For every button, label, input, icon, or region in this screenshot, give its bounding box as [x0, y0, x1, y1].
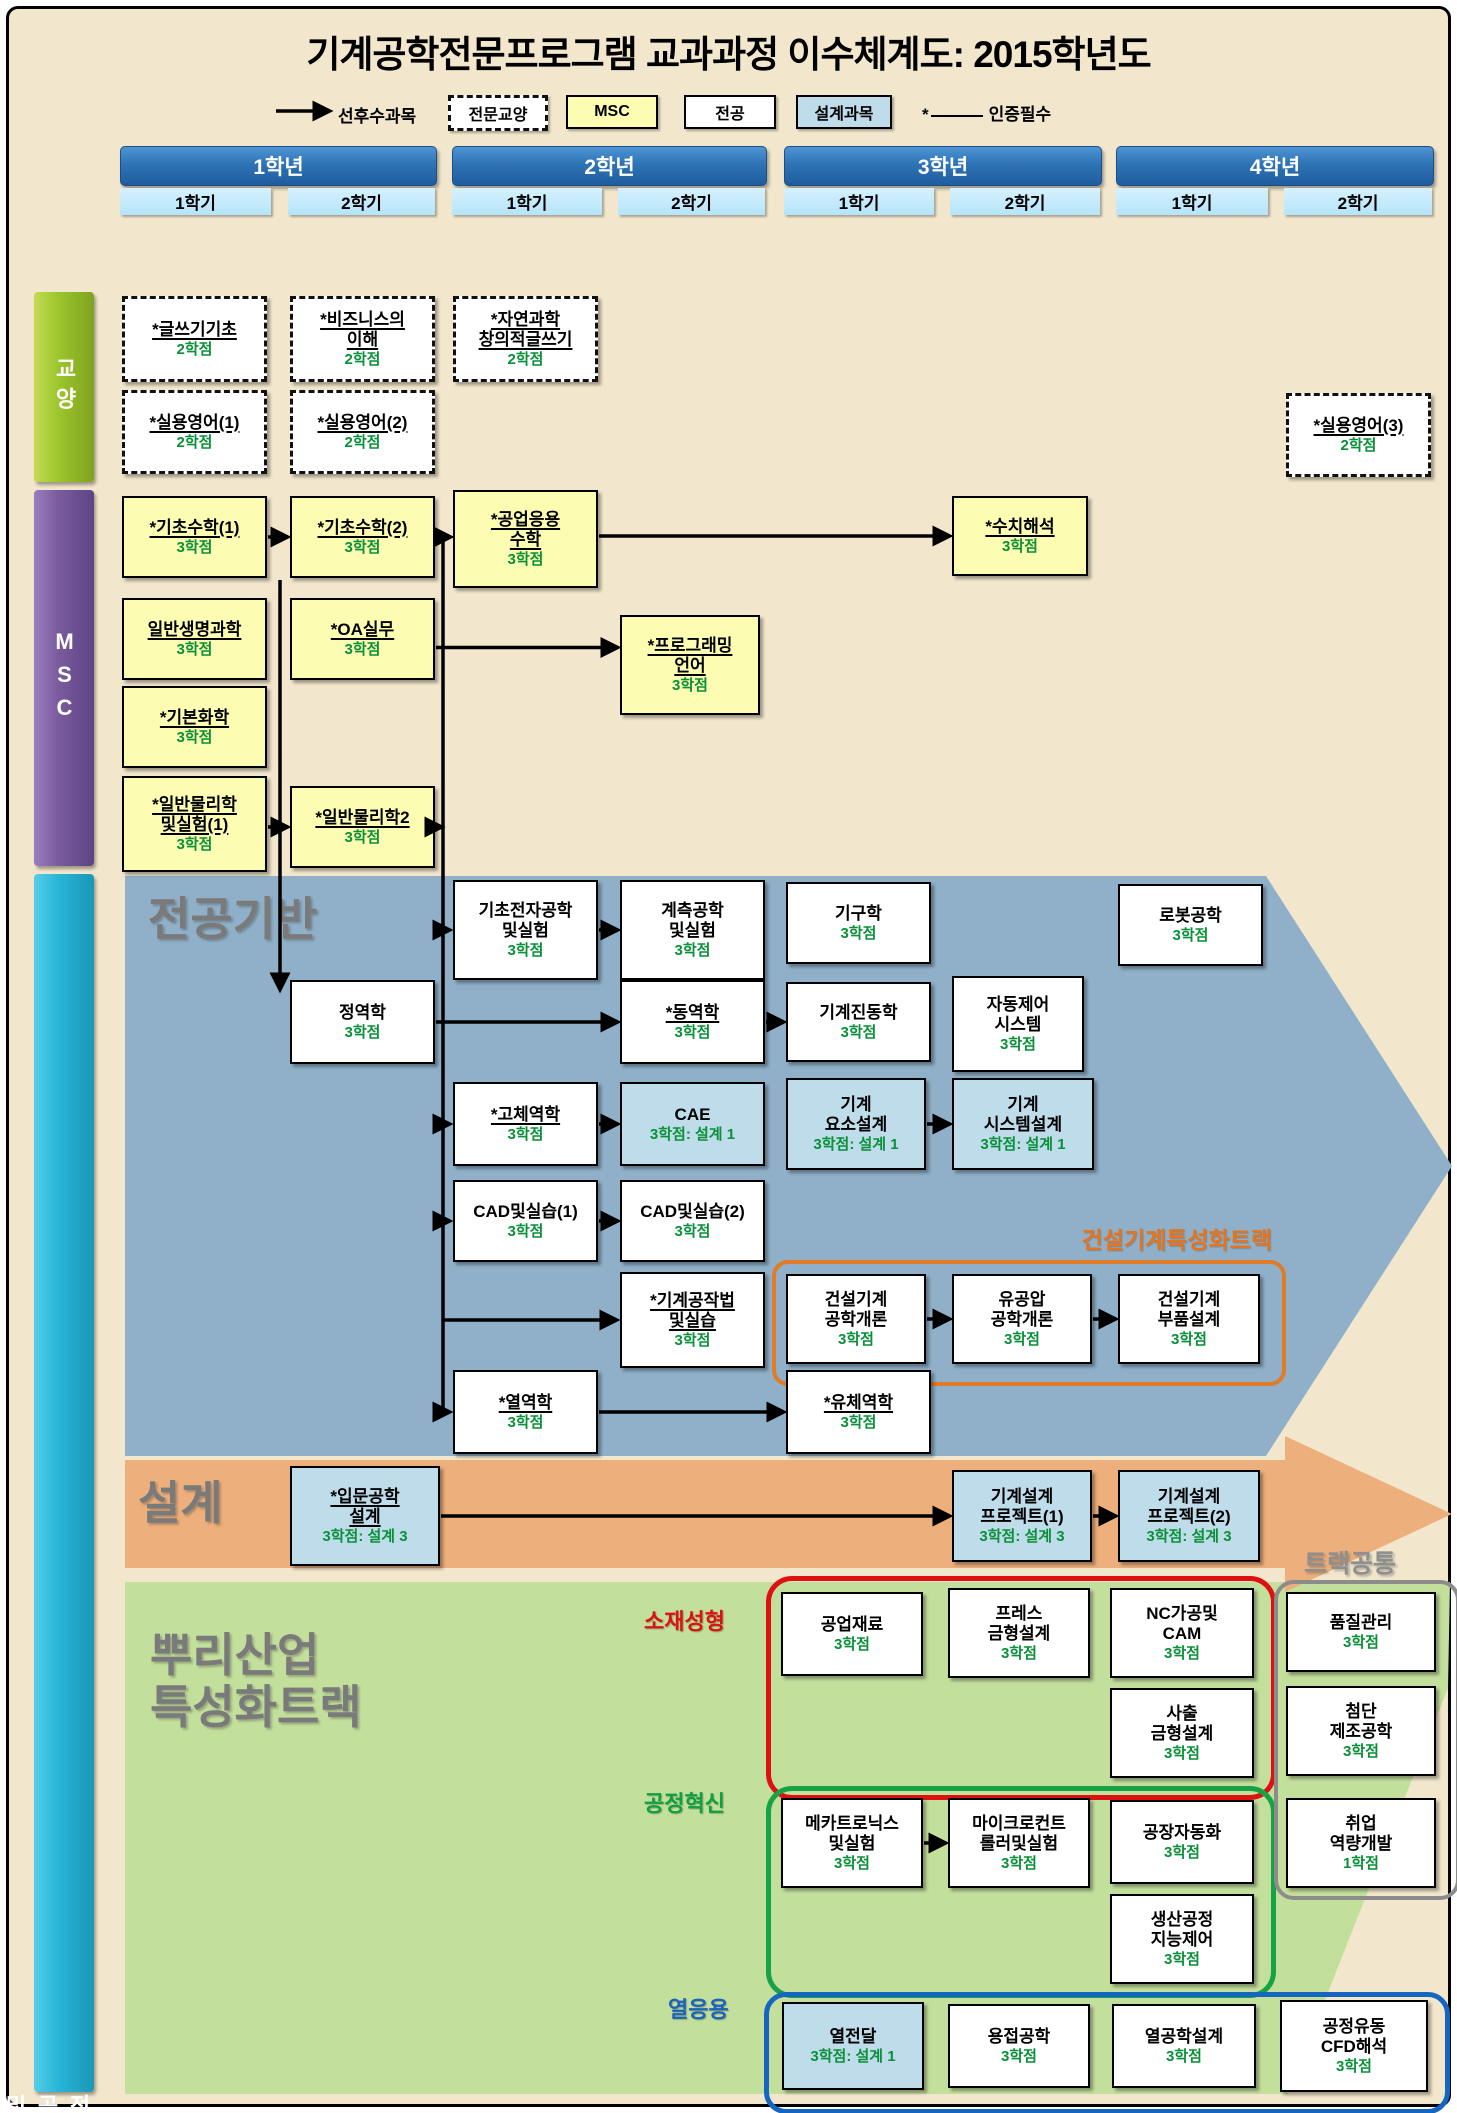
course-constparts: 건설기계부품설계3학점	[1118, 1274, 1260, 1364]
legend-general-education: 전문교양	[448, 95, 548, 131]
course-math1: *기초수학(1)3학점	[122, 496, 267, 578]
y3-sem2-header: 2학기	[950, 188, 1100, 215]
track-common-label: 트랙공통	[1304, 1550, 1396, 1578]
course-hydraulic: 유공압공학개론3학점	[952, 1274, 1092, 1364]
course-numanal: *수치해석3학점	[952, 496, 1088, 576]
star-symbol: *	[922, 105, 929, 124]
y4-sem1-header: 1학기	[1116, 188, 1268, 215]
course-cae: CAE3학점: 설계 1	[620, 1082, 765, 1166]
course-vibration: 기계진동학3학점	[786, 982, 931, 1062]
course-thermo: *열역학3학점	[453, 1370, 598, 1454]
major-base-label: 전공기반	[148, 894, 317, 946]
course-micro: 마이크로컨트롤러및실험3학점	[948, 1798, 1090, 1888]
course-injection: 사출금형설계3학점	[1110, 1688, 1254, 1778]
legend-design-course: 설계과목	[796, 95, 892, 129]
course-advmfg: 첨단제조공학3학점	[1286, 1686, 1436, 1776]
course-quality: 품질관리3학점	[1286, 1592, 1436, 1672]
course-prodproc: 생산공정지능제어3학점	[1110, 1894, 1254, 1984]
course-thermdesign: 열공학설계3학점	[1112, 2004, 1256, 2088]
design-band-label: 설계	[138, 1478, 223, 1530]
course-instr: 계측공학및실험3학점	[620, 880, 765, 980]
course-mecha: 메카트로닉스및실험3학점	[781, 1798, 923, 1888]
year-1-header: 1학년	[120, 146, 437, 186]
course-phys1: *일반물리학및실험(1)3학점	[122, 776, 267, 872]
course-phys2: *일반물리학23학점	[290, 786, 435, 868]
year-3-header: 3학년	[784, 146, 1102, 186]
y2-sem2-header: 2학기	[618, 188, 765, 215]
course-proj1: 기계설계프로젝트(1)3학점: 설계 3	[952, 1470, 1092, 1562]
course-proj2: 기계설계프로젝트(2)3학점: 설계 3	[1118, 1470, 1260, 1562]
y4-sem2-header: 2학기	[1284, 188, 1432, 215]
y3-sem1-header: 1학기	[784, 188, 934, 215]
course-eng1: *실용영어(1)2학점	[122, 390, 267, 474]
legend-major: 전공	[684, 95, 776, 129]
course-eng3: *실용영어(3)2학점	[1286, 393, 1431, 477]
course-chem: *기본화학3학점	[122, 686, 267, 768]
course-press: 프레스금형설계3학점	[948, 1588, 1090, 1678]
course-robot: 로봇공학3학점	[1118, 884, 1263, 966]
course-cfd: 공정유동CFD해석3학점	[1280, 2000, 1428, 2092]
course-introdesign: *입문공학설계3학점: 설계 3	[290, 1466, 440, 1566]
underline-mark	[931, 115, 983, 117]
course-machining: *기계공작법및실습3학점	[620, 1272, 765, 1368]
course-eng2: *실용영어(2)2학점	[290, 390, 435, 474]
course-cad2: CAD및실습(2)3학점	[620, 1180, 765, 1262]
course-heattrans: 열전달3학점: 설계 1	[782, 2002, 924, 2090]
sidebar-msc: MSC	[34, 490, 94, 866]
course-biosci: 일반생명과학3학점	[122, 598, 267, 680]
course-sciwriting: *자연과학창의적글쓰기2학점	[453, 296, 598, 382]
course-writing1: *글쓰기기초2학점	[122, 296, 267, 382]
course-constintro: 건설기계공학개론3학점	[786, 1274, 926, 1364]
course-business: *비즈니스의이해2학점	[290, 296, 435, 382]
course-fluid: *유체역학3학점	[786, 1370, 931, 1454]
legend-certification-required: *인증필수	[922, 100, 1051, 125]
sidebar-general-education: 교양	[34, 292, 94, 482]
course-indmat: 공업재료3학점	[781, 1592, 923, 1676]
course-math2: *기초수학(2)3학점	[290, 496, 435, 578]
material-forming-label: 소재성형	[644, 1610, 725, 1635]
legend-prerequisite-label: 선후수과목	[338, 102, 416, 127]
course-welding: 용접공학3학점	[948, 2004, 1090, 2088]
year-4-header: 4학년	[1116, 146, 1434, 186]
course-prog: *프로그래밍언어3학점	[620, 615, 760, 715]
course-solid: *고체역학3학점	[453, 1082, 598, 1166]
course-machsys: 기계시스템설계3학점: 설계 1	[952, 1078, 1094, 1170]
course-engmath: *공업응용수학3학점	[453, 490, 598, 588]
root-track-label: 뿌리산업 특성화트랙	[150, 1630, 362, 1733]
y1-sem2-header: 2학기	[288, 188, 435, 215]
y1-sem1-header: 1학기	[120, 188, 271, 215]
curriculum-flowchart: 기계공학전문프로그램 교과과정 이수체계도: 2015학년도 선후수과목 전문교…	[0, 0, 1457, 2113]
legend-msc: MSC	[566, 95, 658, 129]
course-machelem: 기계요소설계3학점: 설계 1	[786, 1078, 926, 1170]
course-elec: 기초전자공학및실험3학점	[453, 880, 598, 980]
course-career: 취업역량개발1학점	[1286, 1798, 1436, 1888]
course-cad1: CAD및실습(1)3학점	[453, 1180, 598, 1262]
course-kinematics: 기구학3학점	[786, 882, 931, 964]
construction-track-label: 건설기계특성화트랙	[1010, 1228, 1272, 1254]
course-nccam: NC가공및CAM3학점	[1110, 1588, 1254, 1678]
thermal-application-label: 열응용	[668, 1998, 729, 2023]
year-2-header: 2학년	[452, 146, 767, 186]
page-title: 기계공학전문프로그램 교과과정 이수체계도: 2015학년도	[0, 24, 1457, 78]
course-dynamics: *동역학3학점	[620, 980, 765, 1064]
course-autocontrol: 자동제어시스템3학점	[952, 976, 1084, 1072]
course-oa: *OA실무3학점	[290, 598, 435, 680]
course-statics: 정역학3학점	[290, 980, 435, 1064]
course-factauto: 공장자동화3학점	[1110, 1800, 1254, 1884]
y2-sem1-header: 1학기	[452, 188, 602, 215]
sidebar-major-and-design: 전공 및 설계	[34, 874, 94, 2092]
process-innovation-label: 공정혁신	[644, 1792, 725, 1817]
